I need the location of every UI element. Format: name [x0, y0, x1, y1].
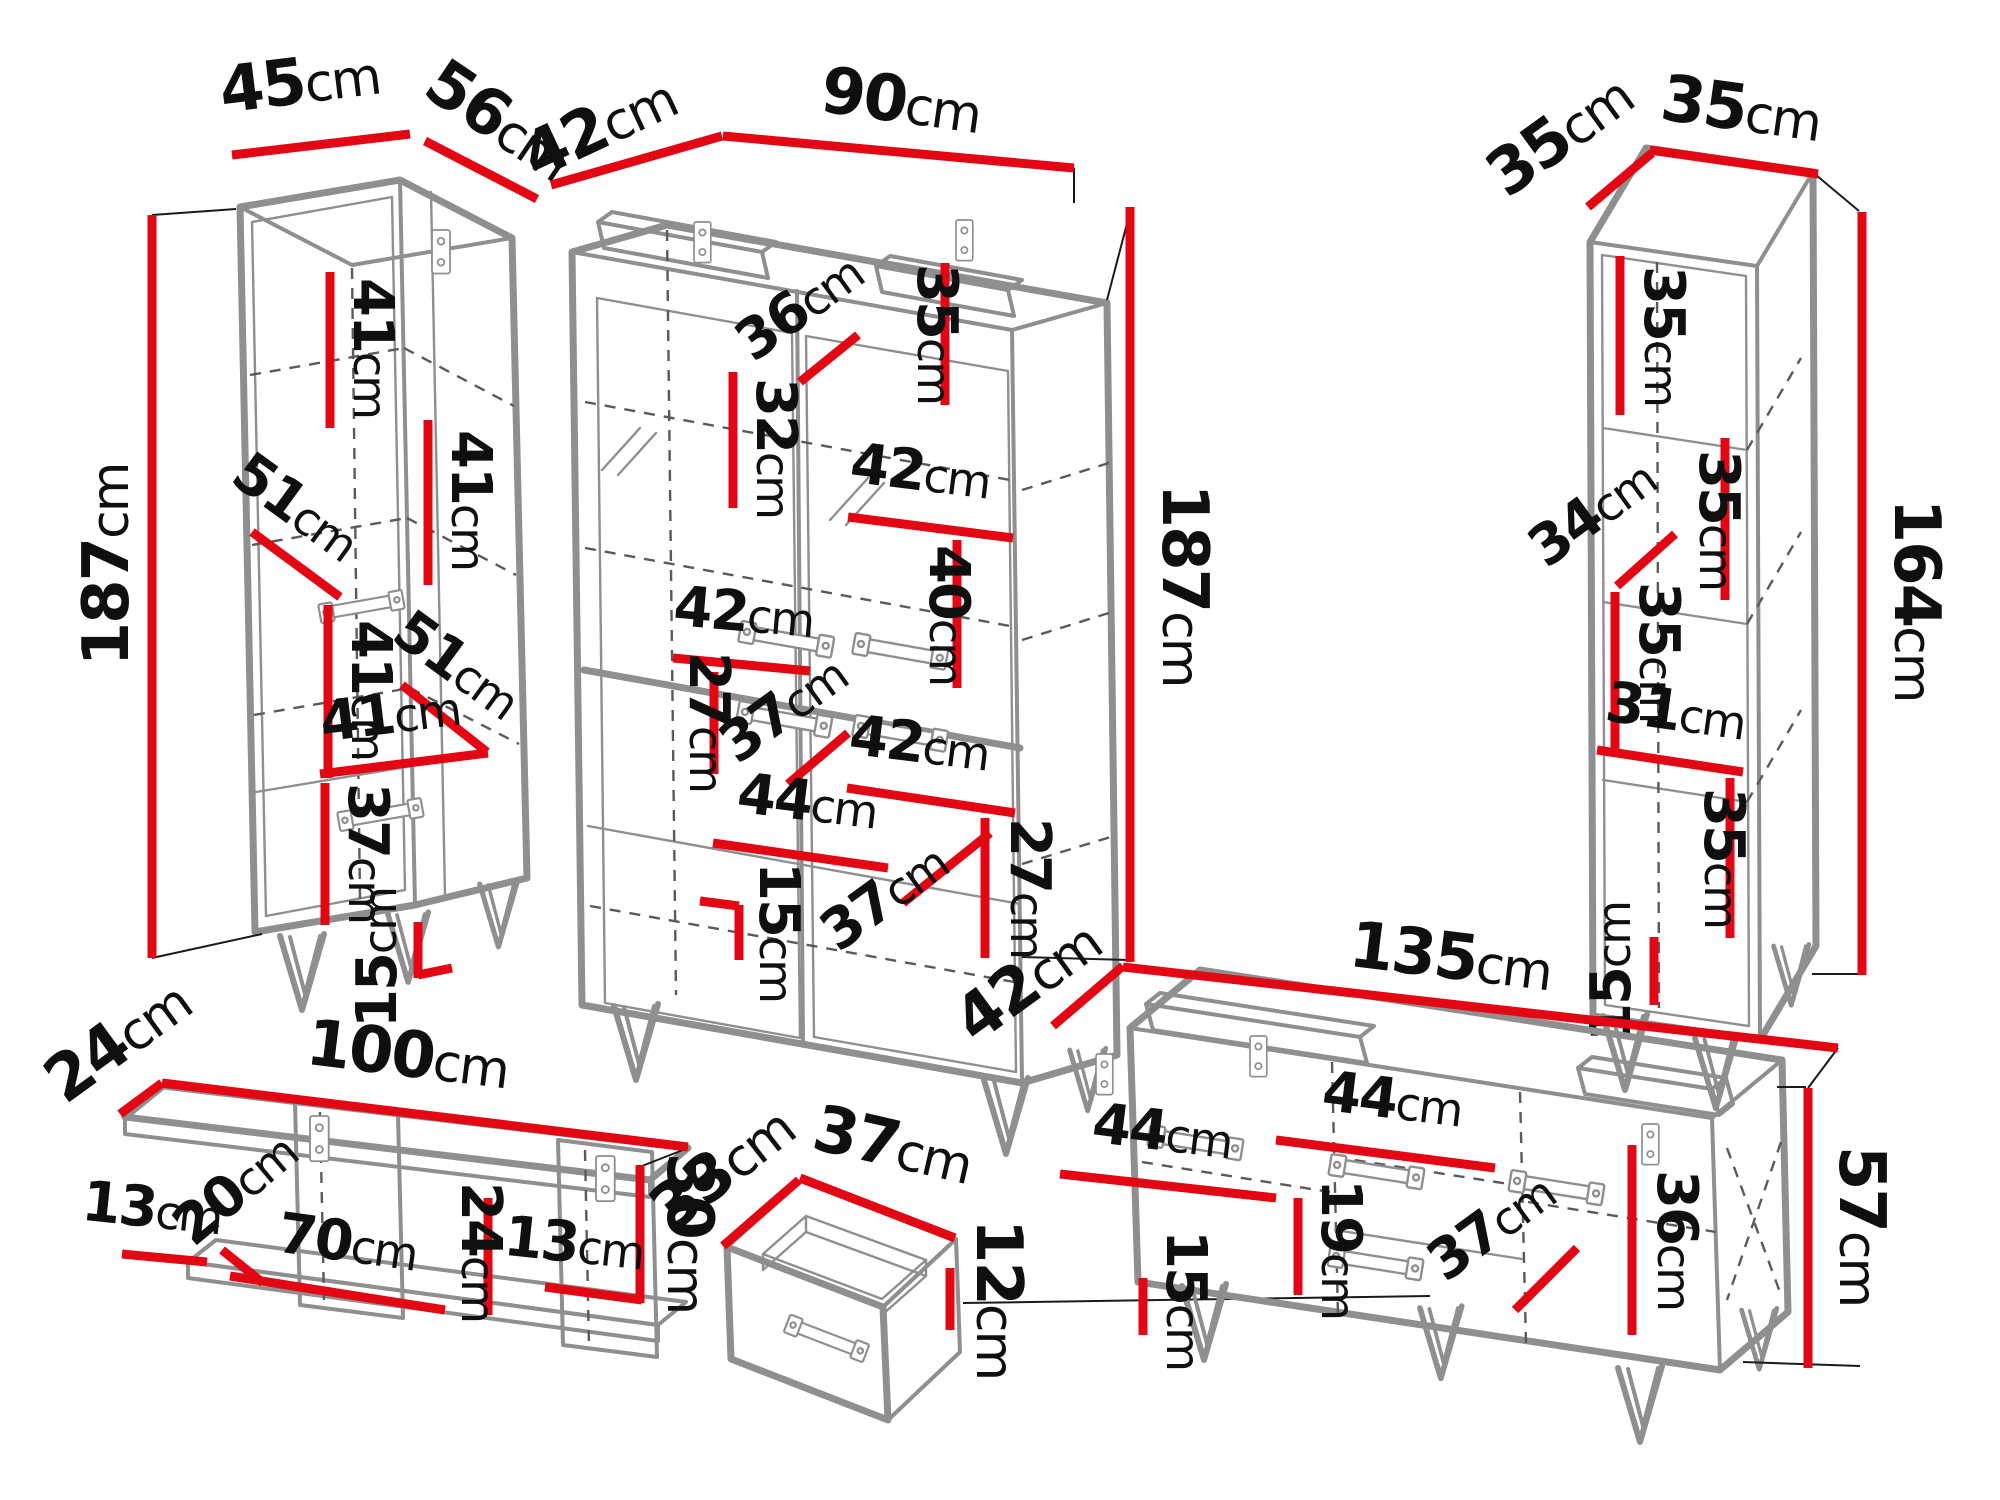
dimension-value: 135 [1345, 908, 1481, 997]
dimension-unit: cm [429, 1033, 511, 1102]
wall-bracket-icon [1250, 1036, 1267, 1077]
dimension-unit: cm [921, 448, 993, 510]
dimension-label: 35cm [1691, 788, 1756, 928]
dimension-label: 15cm [746, 862, 811, 1002]
dimension-value: 42 [671, 574, 750, 645]
dimension-label: 15cm [345, 888, 410, 1028]
dimension-unit: cm [655, 1238, 715, 1313]
dimension-value: 41 [340, 278, 405, 352]
dimension-value: 100 [302, 1006, 438, 1095]
dimension-unit: cm [920, 720, 992, 782]
dimension-value: 15 [1153, 1230, 1218, 1304]
dimension-unit: cm [1163, 1108, 1235, 1170]
dimension-label: 41cm [438, 430, 503, 570]
wall-bracket-icon [956, 220, 973, 261]
wall-bracket-icon [694, 222, 711, 263]
dimension-unit: cm [745, 589, 816, 649]
dimension-value: 13 [79, 1169, 159, 1241]
dimension-value: 35 [1691, 788, 1756, 862]
dimension-unit: cm [1675, 688, 1748, 751]
dimension-value: 27 [997, 818, 1062, 892]
dimension-value: 40 [916, 545, 981, 619]
dimension-value: 35 [1626, 582, 1691, 656]
dimension-label: 187cm [1147, 484, 1221, 687]
dimension-unit: cm [1827, 1231, 1887, 1306]
dimension-unit: cm [746, 452, 800, 518]
dimension-unit: cm [808, 778, 880, 840]
dimension-label: 187cm [70, 464, 144, 667]
dimension-value: 13 [501, 1204, 581, 1276]
dimension-value: 41 [316, 682, 397, 756]
dimension-label: 35cm [1631, 266, 1696, 406]
dimension-unit: cm [1156, 1304, 1210, 1370]
dimension-value: 45 [215, 45, 308, 129]
dimension-value: 31 [1602, 670, 1684, 745]
dimension-unit: cm [1694, 862, 1748, 928]
dimension-unit: cm [1150, 611, 1210, 686]
dimension-value: 32 [743, 378, 808, 452]
dimension-value: 35 [1686, 450, 1751, 524]
dimension-value: 35 [1656, 61, 1751, 146]
dimension-unit: cm [919, 619, 973, 685]
dimension-unit: cm [749, 936, 803, 1002]
dimension-label: 40cm [916, 545, 981, 685]
dimension-value: 41 [438, 430, 503, 504]
dimension-value: 12 [961, 1219, 1035, 1304]
dimension-unit: cm [81, 464, 141, 539]
dimension-value: 37 [335, 783, 400, 857]
wall-bracket-icon [1096, 1054, 1113, 1095]
dimension-value: 35 [904, 264, 969, 338]
dimension-unit: cm [1882, 626, 1942, 701]
dimension-unit: cm [575, 1220, 646, 1281]
dimension-label: 35cm [904, 264, 969, 404]
dimension-label: 32cm [743, 378, 808, 518]
dimension-unit: cm [451, 1256, 505, 1322]
dimension-value: 70 [274, 1201, 356, 1276]
dimension-unit: cm [353, 888, 407, 954]
dimension-label: 36cm [1644, 1170, 1709, 1310]
wall-bracket-icon [432, 230, 450, 274]
wall-bracket-icon [310, 1116, 329, 1161]
dimension-value: 90 [816, 53, 911, 138]
furniture-dimensions-diagram: 45cm 56cm 187cm 41cm 41cm 51cm 41cm 51c [0, 0, 2000, 1500]
dimension-value: 44 [1089, 1091, 1170, 1165]
dimension-value: 57 [1824, 1146, 1898, 1231]
dimension-value: 187 [1147, 484, 1221, 612]
dimension-label: 15cm [1153, 1230, 1218, 1370]
dimension-unit: cm [1741, 84, 1824, 154]
dimension-unit: cm [1393, 1076, 1465, 1138]
dimension-unit: cm [343, 352, 397, 418]
wall-bracket-icon [596, 1156, 615, 1201]
dimension-unit: cm [1472, 935, 1554, 1004]
dimension-label: 19cm [1308, 1179, 1373, 1319]
dimension-value: 35 [1631, 266, 1696, 340]
dimension-label: 41cm [340, 278, 405, 418]
dimension-unit: cm [901, 76, 984, 146]
dimension-value: 44 [1319, 1059, 1400, 1133]
dimension-label: 12cm [961, 1219, 1035, 1379]
dimension-label: 57cm [1824, 1146, 1898, 1306]
dimension-unit: cm [964, 1304, 1024, 1379]
dimension-label: 164cm [1879, 499, 1953, 702]
dimension-unit: cm [1634, 340, 1688, 406]
dimension-unit: cm [347, 1219, 420, 1282]
dimension-unit: cm [1587, 902, 1641, 968]
dimension-value: 15 [746, 862, 811, 936]
dimension-unit: cm [1647, 1244, 1701, 1310]
dimension-value: 187 [70, 539, 144, 667]
wall-bracket-icon [1642, 1124, 1659, 1165]
dimension-value: 164 [1879, 499, 1953, 627]
furniture-dimension-sheet: 45cm 56cm 187cm 41cm 41cm 51cm 41cm 51c [0, 0, 2000, 1500]
dimension-value: 36 [1644, 1170, 1709, 1244]
dimension-unit: cm [441, 504, 495, 570]
dimension-unit: cm [301, 47, 383, 116]
dimension-label: 35cm [1686, 450, 1751, 590]
dimension-value: 19 [1308, 1179, 1373, 1253]
dimension-unit: cm [1311, 1253, 1365, 1319]
dimension-unit: cm [907, 338, 961, 404]
dimension-value: 42 [846, 703, 927, 777]
dimension-unit: cm [391, 682, 463, 744]
dimension-unit: cm [1689, 524, 1743, 590]
dimension-value: 44 [734, 761, 815, 835]
dimension-value: 42 [847, 431, 928, 505]
